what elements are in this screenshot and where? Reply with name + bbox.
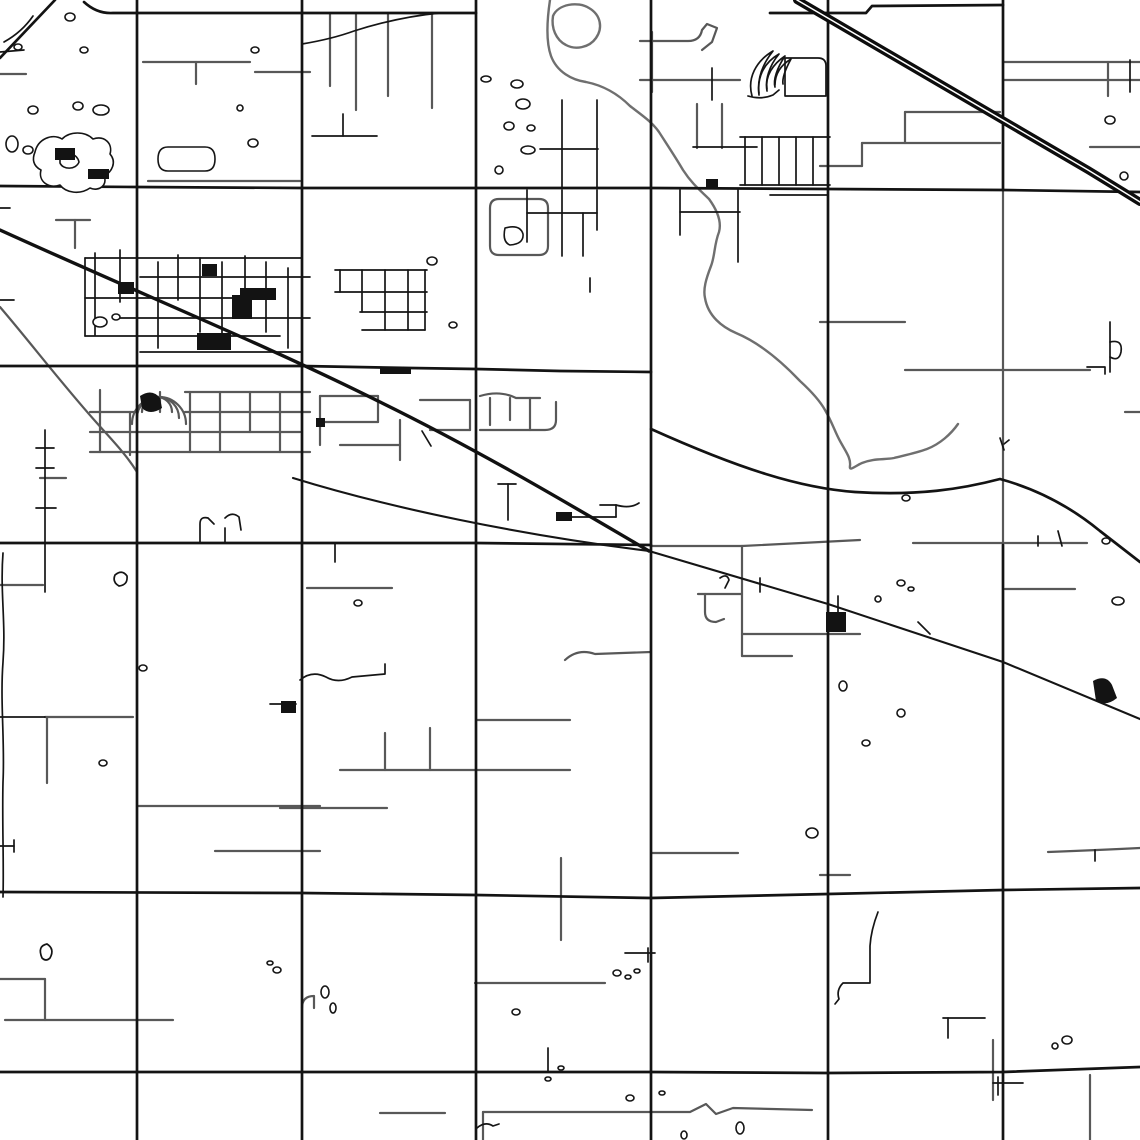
layer-diagonal-roads [293, 478, 1140, 719]
town-streets-path [720, 576, 729, 588]
built-areas-path [88, 169, 109, 179]
town-streets-path [422, 431, 431, 446]
minor-roads-path [742, 540, 860, 546]
major-roads-path [0, 1067, 1140, 1073]
town-streets-path [616, 503, 639, 507]
water-bodies-path [897, 580, 905, 586]
water-bodies-path [558, 1066, 564, 1070]
water-bodies-path [65, 13, 75, 21]
water-bodies-path [736, 1122, 744, 1134]
water-bodies-path [545, 1077, 551, 1081]
diagonal-roads-path [293, 478, 649, 551]
built-areas-path [1093, 678, 1117, 703]
water-bodies-path [521, 146, 535, 154]
built-areas-path [380, 367, 411, 374]
street-map-print [0, 0, 1140, 1140]
water-bodies-path [516, 99, 530, 109]
built-areas-path [202, 264, 217, 276]
minor-roads-path [302, 996, 314, 1008]
water-bodies-path [1105, 116, 1115, 124]
water-bodies-path [806, 828, 818, 838]
water-bodies-path [112, 314, 120, 320]
water-bodies-path [839, 681, 847, 691]
town-streets-path [40, 944, 52, 960]
minor-roads-path [490, 199, 548, 255]
water-bodies-path [267, 961, 273, 965]
layer-railroad-diagonal [0, 230, 649, 551]
water-bodies-path [273, 967, 281, 973]
water-bodies-path [634, 969, 640, 973]
built-areas-path [826, 612, 846, 632]
major-roads-path [0, 366, 651, 372]
water-bodies-path [251, 47, 259, 53]
major-roads-path [0, 888, 1140, 898]
water-bodies-path [427, 257, 437, 265]
water-bodies-path [626, 1095, 634, 1101]
water-bodies-path [481, 76, 491, 82]
water-bodies-path [681, 1131, 687, 1139]
water-bodies-path [330, 1003, 336, 1013]
river-path [548, 0, 959, 469]
water-bodies-path [99, 760, 107, 766]
water-bodies-path [248, 139, 258, 147]
town-streets-path [748, 90, 779, 98]
water-bodies-path [504, 122, 514, 130]
major-roads-path [84, 2, 476, 13]
town-streets-path [200, 518, 214, 543]
water-bodies-path [902, 495, 910, 501]
water-bodies-path [1062, 1036, 1072, 1044]
town-streets-path [300, 664, 385, 681]
water-bodies-path [908, 587, 914, 591]
built-areas-path [232, 295, 252, 319]
water-bodies-path [1120, 172, 1128, 180]
water-bodies-path [495, 166, 503, 174]
water-bodies-path [511, 80, 523, 88]
water-bodies-path [321, 986, 329, 998]
map-canvas [0, 0, 1140, 1140]
town-streets-path [835, 912, 878, 1004]
town-streets-path [1110, 341, 1121, 358]
built-areas-path [316, 418, 325, 427]
minor-roads-path [565, 652, 651, 660]
minor-roads-path [705, 594, 724, 622]
water-bodies-path [14, 44, 22, 50]
water-bodies-path [139, 665, 147, 671]
water-bodies-path [897, 709, 905, 717]
town-streets-path [785, 58, 826, 96]
built-areas-path [118, 282, 134, 294]
water-bodies-path [354, 600, 362, 606]
water-bodies-path [504, 227, 523, 245]
water-bodies-path [659, 1091, 665, 1095]
minor-roads-path [1048, 848, 1140, 852]
water-bodies-path [237, 105, 243, 111]
railroad-diagonal-path [0, 230, 649, 551]
built-areas-path [706, 179, 718, 188]
water-bodies-path [23, 146, 33, 154]
water-bodies-path [80, 47, 88, 53]
water-bodies-path [73, 102, 83, 110]
town-streets-path [1004, 440, 1009, 444]
major-roads-path [0, 0, 55, 58]
layer-minor-roads [0, 13, 1140, 1140]
built-areas-path [197, 333, 231, 350]
built-areas-path [55, 148, 75, 160]
water-bodies-path [158, 147, 215, 171]
town-streets-path [477, 1124, 499, 1128]
major-roads-path [0, 543, 651, 545]
layer-river [548, 0, 959, 469]
minor-roads-path [0, 307, 137, 472]
minor-roads-path [480, 402, 556, 430]
water-bodies-path [1102, 538, 1110, 544]
water-bodies-path [625, 975, 631, 979]
layer-built-areas [55, 148, 1117, 713]
built-areas-path [556, 512, 572, 521]
water-bodies-path [1052, 1043, 1058, 1049]
water-bodies-path [512, 1009, 520, 1015]
water-bodies-path [875, 596, 881, 602]
water-bodies-path [613, 970, 621, 976]
built-areas-path [140, 392, 162, 412]
water-bodies-path [93, 317, 107, 327]
town-streets-path [302, 13, 440, 44]
town-streets-path [225, 514, 241, 530]
built-areas-path [281, 701, 296, 713]
water-bodies-path [93, 105, 109, 115]
water-bodies-path [6, 136, 18, 152]
minor-roads-path [483, 1104, 812, 1114]
water-bodies-path [527, 125, 535, 131]
river-path [553, 4, 600, 47]
town-streets-path [114, 572, 127, 586]
town-streets-path [918, 622, 930, 634]
water-bodies-path [449, 322, 457, 328]
major-roads-path [0, 186, 1140, 192]
water-bodies-path [28, 106, 38, 114]
water-bodies-path [1112, 597, 1124, 605]
water-bodies-path [862, 740, 870, 746]
